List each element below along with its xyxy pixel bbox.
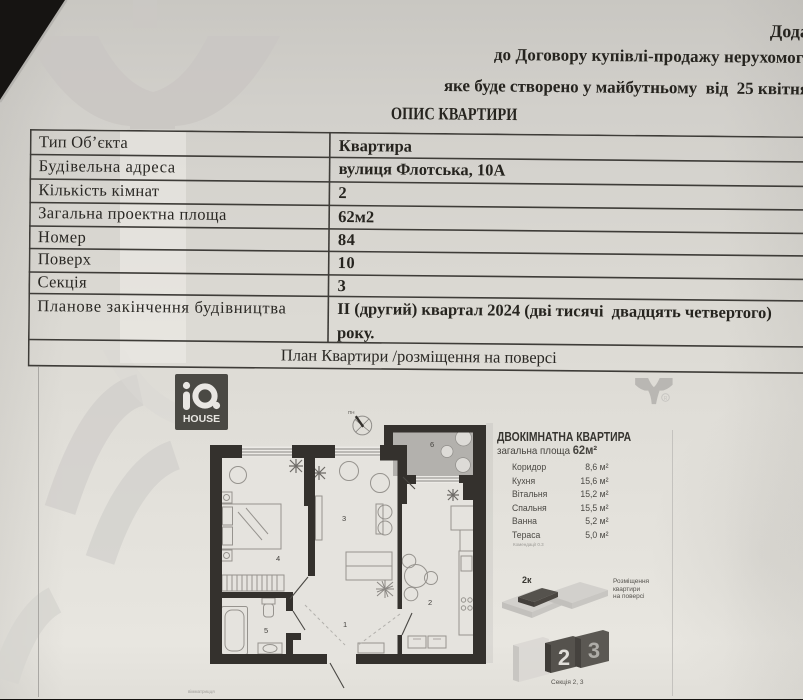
svg-text:6: 6 bbox=[430, 440, 434, 449]
svg-text:3: 3 bbox=[342, 514, 346, 523]
svg-text:R: R bbox=[664, 396, 668, 402]
svg-text:2: 2 bbox=[558, 645, 570, 670]
svg-text:2: 2 bbox=[428, 598, 432, 607]
svg-text:5: 5 bbox=[264, 626, 268, 635]
svg-text:1: 1 bbox=[343, 620, 347, 629]
svg-text:4: 4 bbox=[276, 554, 280, 563]
svg-text:3: 3 bbox=[588, 638, 600, 663]
svg-text:ПН: ПН bbox=[348, 410, 354, 415]
